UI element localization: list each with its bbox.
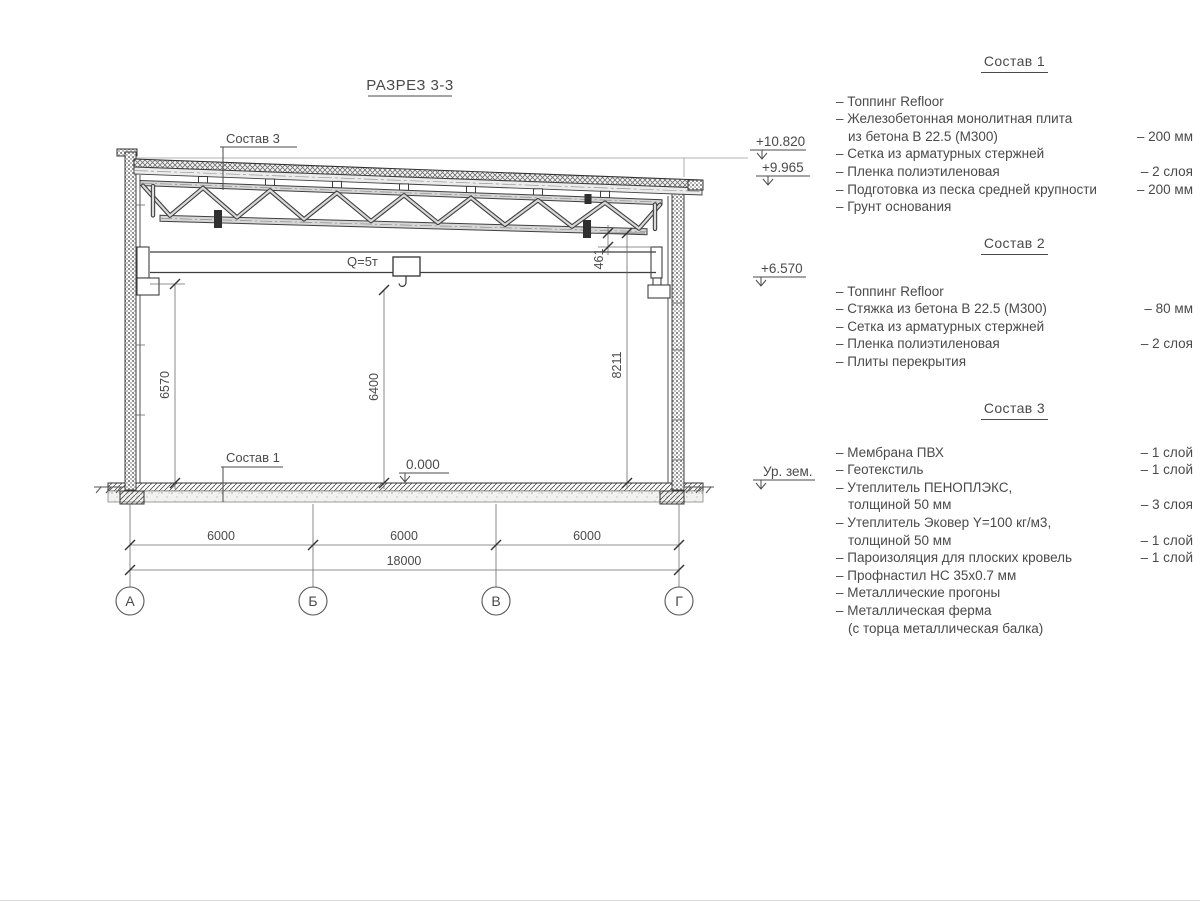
dim-span-1: 6000 — [207, 529, 235, 543]
list-item: – Пароизоляция для плоских кровель– 1 сл… — [836, 549, 1193, 567]
list-item: – Утеплитель ПЕНОПЛЭКС, — [836, 479, 1193, 497]
list-item: – Сетка из арматурных стержней — [836, 318, 1193, 336]
callout-sostav3-label: Состав 3 — [226, 131, 280, 146]
elevation-value: Ур. зем. — [763, 464, 813, 479]
dimension-rows: 6000 6000 6000 18000 — [125, 529, 684, 575]
list-item: – Стяжка из бетона В 22.5 (М300)– 80 мм — [836, 300, 1193, 318]
list-item: – Пленка полиэтиленовая– 2 слоя — [836, 335, 1193, 353]
crane-hook — [399, 276, 406, 286]
elevation-mark-roof-low: +9.965 — [756, 160, 810, 185]
zero-level-mark: 0.000 — [399, 457, 449, 482]
legend-title-text: Состав 3 — [981, 400, 1048, 420]
drawing-sheet: Q=5т 6570 6400 8211 461 0.000 — [0, 0, 1200, 901]
list-item: – Железобетонная монолитная плита — [836, 110, 1193, 128]
drawing-title-text: РАЗРЕЗ 3-3 — [366, 77, 454, 94]
top-chord-splice — [585, 194, 592, 204]
legend-section-sostav2: Состав 2 – Топпинг Refloor – Стяжка из б… — [836, 235, 1193, 371]
crane-capacity-label: Q=5т — [347, 254, 378, 269]
bottom-chord-splice-left — [214, 210, 222, 228]
list-item: – Металлическая ферма — [836, 602, 1193, 620]
floor-slab — [94, 483, 714, 504]
elevation-mark-ground: Ур. зем. — [753, 464, 815, 489]
drawing-title: РАЗРЕЗ 3-3 — [366, 77, 454, 96]
left-wall — [117, 149, 145, 490]
list-item: – Профнастил НС 35х0.7 мм — [836, 567, 1193, 585]
axis-label-g: Г — [675, 593, 683, 609]
left-footing — [120, 491, 144, 504]
list-item: – Утеплитель Эковер Y=100 кг/м3, — [836, 514, 1193, 532]
axis-bubbles: А Б В Г — [116, 587, 693, 615]
elevation-value: +9.965 — [762, 160, 804, 175]
dim-span-3: 6000 — [573, 529, 601, 543]
right-footing — [660, 491, 684, 504]
roof-edge-plate — [688, 180, 703, 190]
axis-label-v: В — [491, 593, 500, 609]
list-item: – Плиты перекрытия — [836, 353, 1193, 371]
dim-hook-height: 6400 — [367, 373, 381, 401]
legend-title-text: Состав 1 — [981, 53, 1048, 73]
section-drawing: Q=5т 6570 6400 8211 461 0.000 — [0, 0, 830, 700]
elevation-value: +10.820 — [756, 134, 805, 149]
elevation-mark-crane-rail: +6.570 — [753, 261, 806, 286]
list-item: – Подготовка из песка средней крупности–… — [836, 181, 1193, 199]
zero-level-value: 0.000 — [406, 457, 440, 472]
dim-total-span: 18000 — [387, 554, 422, 568]
list-item: – Металлические прогоны — [836, 584, 1193, 602]
legend-title: Состав 3 — [836, 400, 1193, 420]
axis-label-a: А — [125, 593, 135, 609]
legend-section-sostav1: Состав 1 – Топпинг Refloor – Железобетон… — [836, 53, 1193, 216]
elevation-value: +6.570 — [761, 261, 803, 276]
callout-sostav3: Состав 3 — [220, 131, 297, 190]
list-item: толщиной 50 мм– 1 слой — [836, 532, 1193, 550]
callout-sostav1-label: Состав 1 — [226, 450, 280, 465]
dim-truss-clear: 8211 — [610, 352, 624, 379]
legend-rows: – Мембрана ПВХ– 1 слой – Геотекстиль– 1 … — [836, 444, 1193, 638]
list-item: – Топпинг Refloor — [836, 93, 1193, 111]
list-item: – Пленка полиэтиленовая– 2 слоя — [836, 163, 1193, 181]
dim-rail-height: 6570 — [158, 371, 172, 399]
right-wall — [668, 193, 684, 490]
dim-span-2: 6000 — [390, 529, 418, 543]
list-item: – Мембрана ПВХ– 1 слой — [836, 444, 1193, 462]
elevation-mark-roof-high: +10.820 — [750, 134, 806, 159]
legend-rows: – Топпинг Refloor – Железобетонная монол… — [836, 93, 1193, 216]
list-item: (с торца металлическая балка) — [836, 620, 1193, 638]
legend-section-sostav3: Состав 3 – Мембрана ПВХ– 1 слой – Геотек… — [836, 400, 1193, 637]
dim-gap-461: 461 — [592, 249, 606, 270]
roof-assembly — [134, 159, 703, 195]
axis-label-b: Б — [308, 593, 317, 609]
list-item: – Топпинг Refloor — [836, 283, 1193, 301]
legend-title: Состав 1 — [836, 53, 1193, 73]
legend-rows: – Топпинг Refloor – Стяжка из бетона В 2… — [836, 283, 1193, 371]
list-item: из бетона В 22.5 (М300)– 200 мм — [836, 128, 1193, 146]
bottom-chord-splice-right — [583, 220, 591, 238]
axis-extension-lines — [130, 504, 679, 587]
list-item: толщиной 50 мм– 3 слоя — [836, 496, 1193, 514]
crane-bridge: Q=5т — [150, 252, 656, 286]
legend-title: Состав 2 — [836, 235, 1193, 255]
legend-title-text: Состав 2 — [981, 235, 1048, 255]
list-item: – Сетка из арматурных стержней — [836, 145, 1193, 163]
crane-trolley — [393, 257, 420, 276]
list-item: – Грунт основания — [836, 198, 1193, 216]
list-item: – Геотекстиль– 1 слой — [836, 461, 1193, 479]
